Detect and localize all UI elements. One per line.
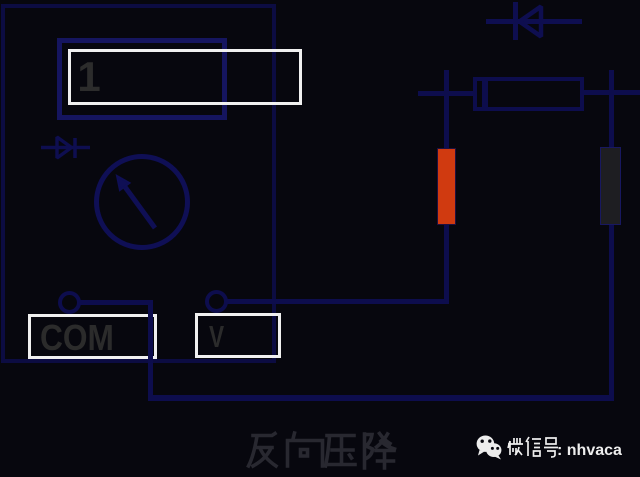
svg-text:: nhvaca: : nhvaca	[557, 442, 622, 459]
